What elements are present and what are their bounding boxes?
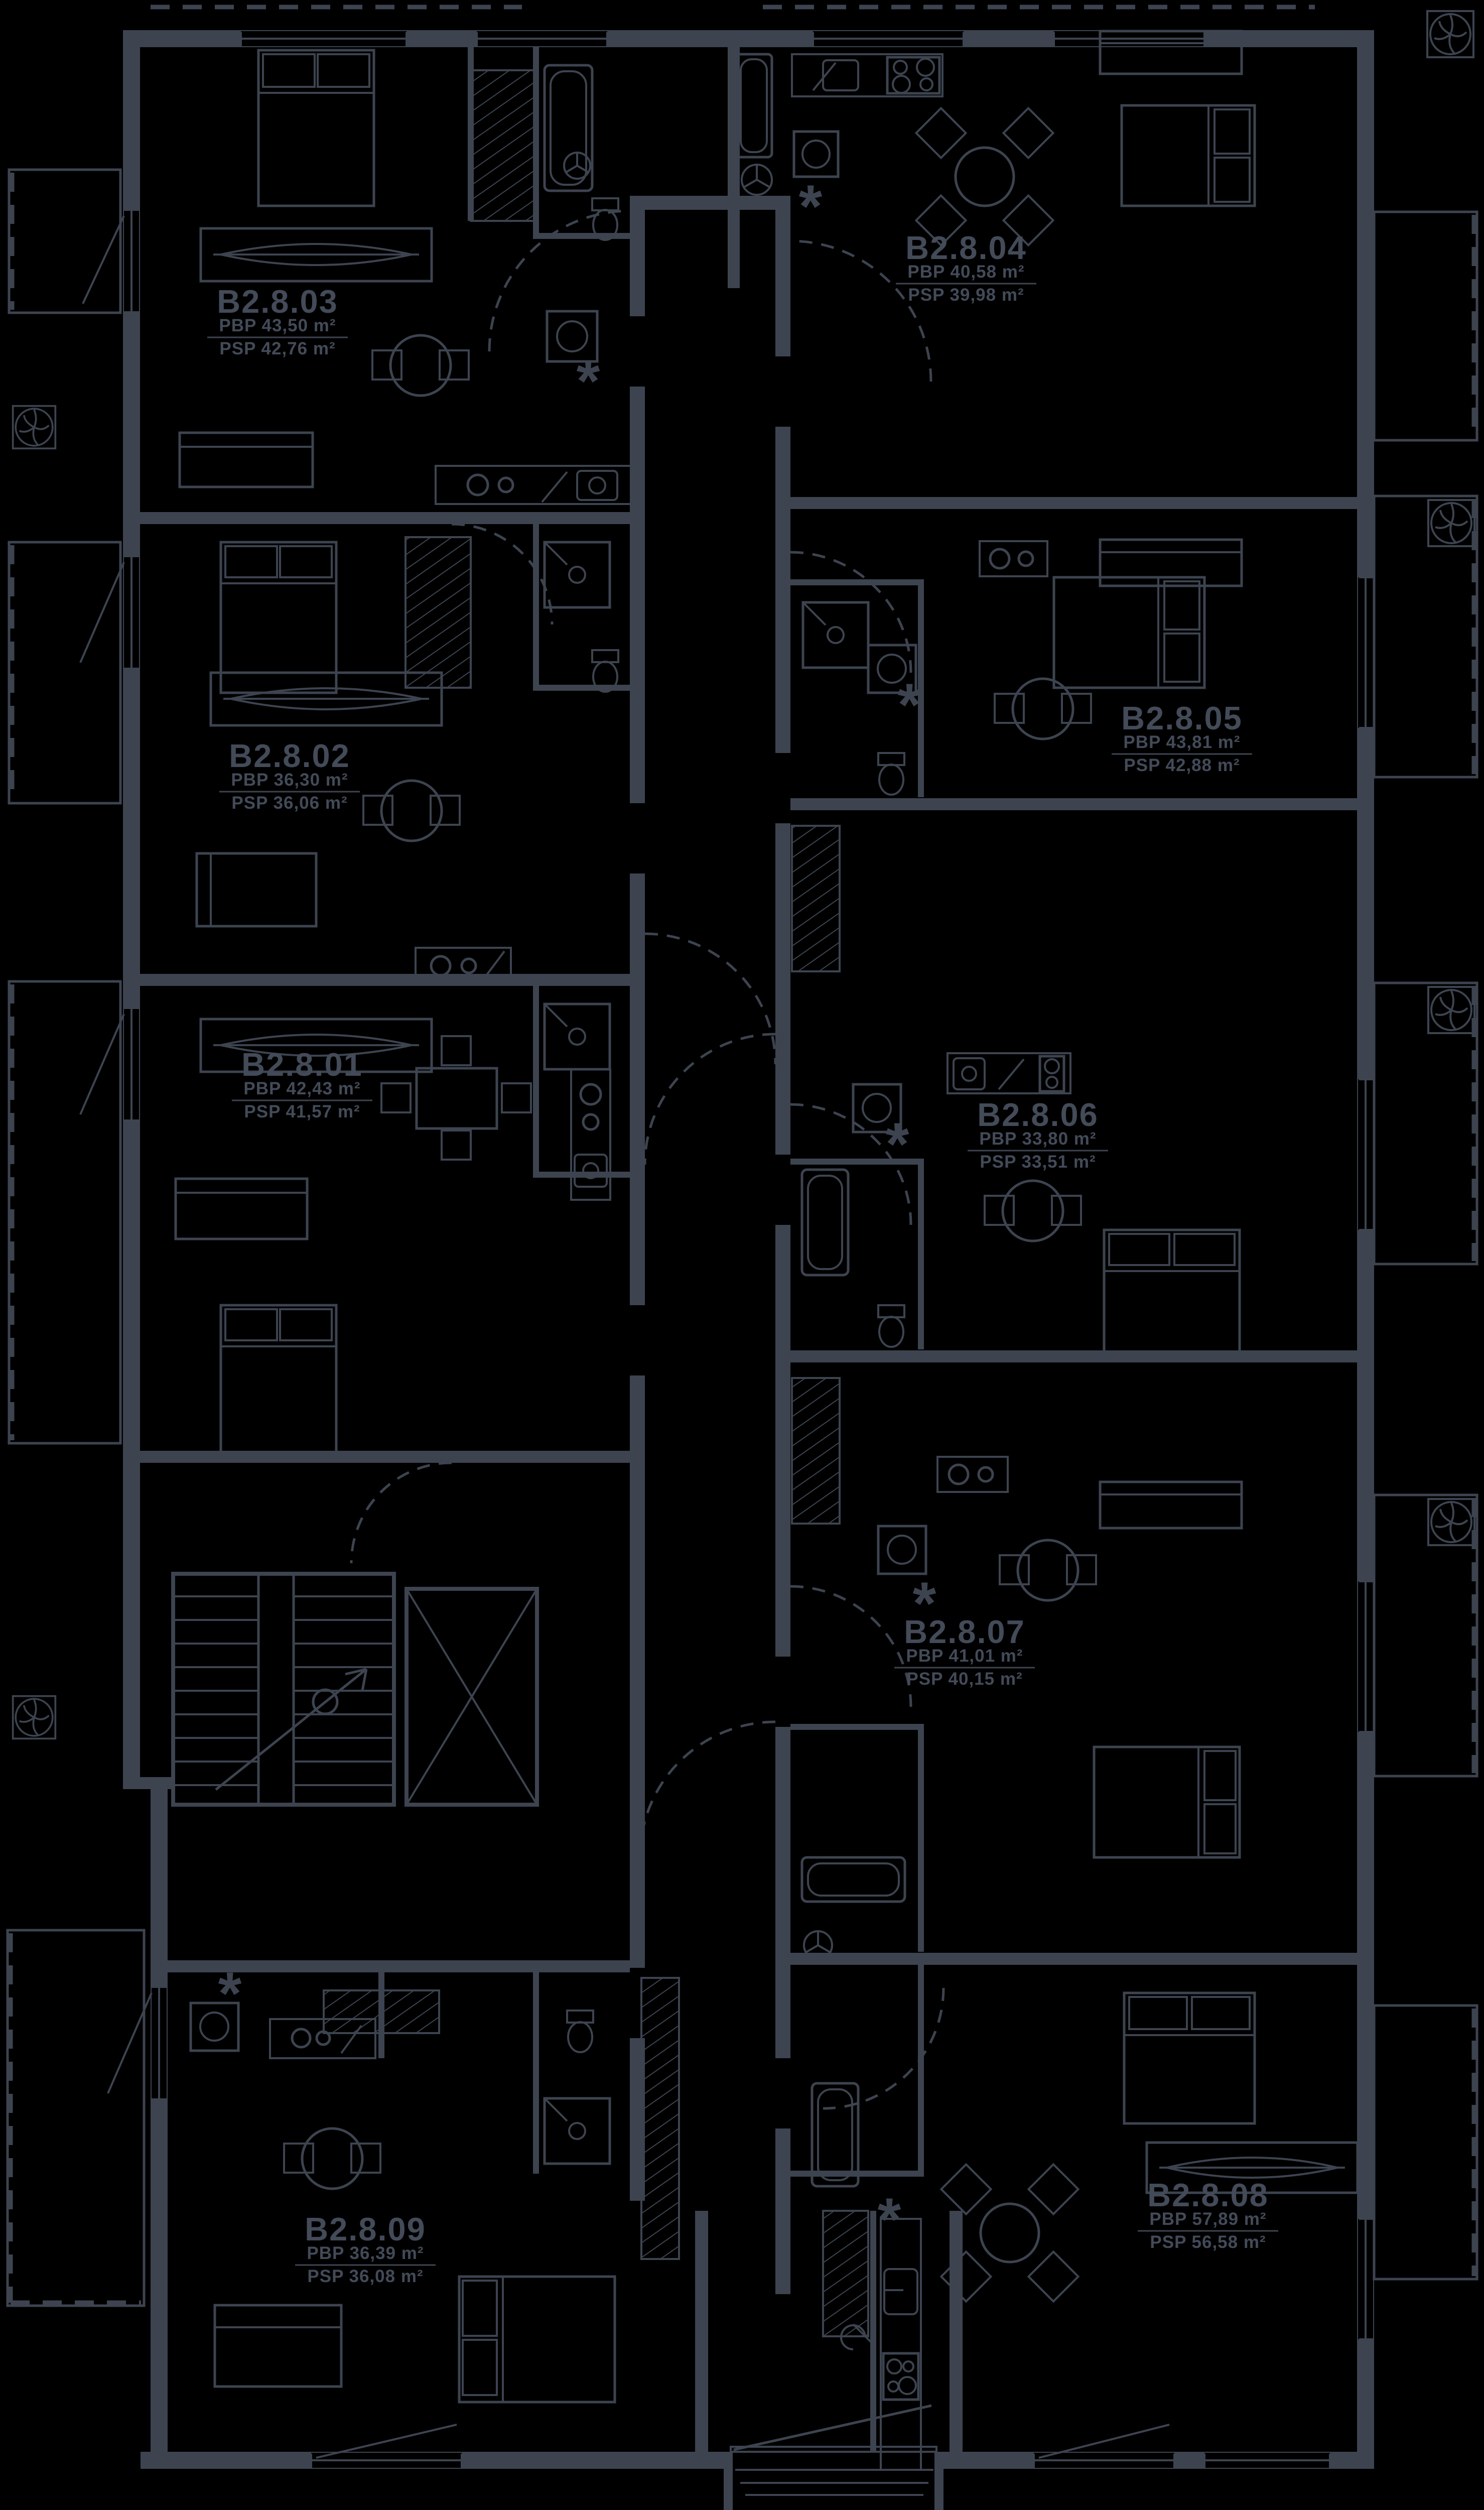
shower [545,2098,610,2164]
balcony [9,981,120,1443]
shower [545,1004,610,1069]
balcony-door [83,211,139,311]
double-bed [1122,105,1255,206]
apartment-psp: PSP 40,15 m² [906,1669,1022,1689]
apartment-label-b2-8-06: B2.8.06 PBP 33,80 m² PSP 33,51 m² [968,1096,1108,1172]
apartment-pbp: PBP 41,01 m² [906,1646,1023,1666]
asterisk-icon: * [799,173,823,240]
dining-table [1000,1540,1096,1600]
window [1204,2453,1330,2468]
fan-icon [742,165,772,195]
double-bed [221,542,336,693]
balcony [9,542,120,803]
balcony [1374,212,1477,440]
tree-icon [1428,987,1474,1033]
window [1358,1079,1373,1230]
sofa [176,1179,307,1239]
kitchen-counter [792,54,942,96]
balcony [1374,1495,1477,1776]
asterisk-icon: * [886,1110,909,1178]
kitchen-counter [571,1069,610,1200]
apartment-pbp: PBP 33,80 m² [979,1129,1096,1149]
floor-plan-page: * * * * * * * B2.8.03 PBP 43,50 m² PSP 4… [0,0,1484,2510]
apartment-id: B2.8.01 [241,1046,363,1083]
balcony-door [80,1009,139,1119]
apartment-psp: PSP 42,76 m² [219,339,335,358]
stair-direction-arrow [216,1669,366,1790]
window [241,31,407,46]
apartment-psp: PSP 42,88 m² [1124,756,1240,775]
building-entrance [724,2406,943,2510]
dining-table [284,2128,380,2189]
shower [803,602,868,668]
floor-plan-svg: * * * * * * * B2.8.03 PBP 43,50 m² PSP 4… [0,0,1484,2510]
apartment-pbp: PBP 43,81 m² [1123,732,1240,752]
apartment-psp: PSP 33,51 m² [980,1152,1096,1172]
kitchen-counter [436,466,631,504]
bathtub [802,1857,905,1902]
apartment-id: B2.8.03 [217,283,338,320]
dining-table [381,1036,531,1160]
radiator [201,228,432,281]
double-bed [1124,1993,1255,2123]
kitchen-counter [948,1053,1070,1093]
double-bed [1104,1230,1240,1355]
wardrobe [471,70,536,221]
apartment-psp: PSP 39,98 m² [908,285,1024,305]
sofa [215,2305,341,2387]
wardrobe [792,826,840,971]
window [1034,2425,1174,2468]
elevator [407,1589,537,1805]
kitchen-counter [980,541,1047,576]
terrace [8,1930,144,2306]
balcony [1374,983,1477,1264]
apartment-label-b2-8-03: B2.8.03 PBP 43,50 m² PSP 42,76 m² [207,283,348,358]
apartment-label-b2-8-01: B2.8.01 PBP 42,43 m² PSP 41,57 m² [232,1046,372,1121]
apartment-pbp: PBP 57,89 m² [1149,2209,1266,2229]
asterisk-icon: * [577,347,600,415]
apartment-id: B2.8.02 [229,737,350,774]
toilet [878,1305,904,1347]
apartment-id: B2.8.06 [977,1096,1099,1133]
double-bed [258,50,374,206]
double-bed [1054,577,1204,688]
bathtub [736,54,772,157]
furniture [176,31,1255,2470]
double-bed [1094,1747,1240,1857]
apartment-labels: B2.8.03 PBP 43,50 m² PSP 42,76 m² B2.8.0… [207,229,1278,2286]
apartment-id: B2.8.07 [904,1613,1025,1650]
dining-table [363,781,460,841]
balcony [1374,496,1477,777]
double-bed [221,1305,336,1456]
apartment-label-b2-8-04: B2.8.04 PBP 40,58 m² PSP 39,98 m² [896,229,1036,305]
wardrobe [823,2211,868,2336]
apartment-psp: PSP 41,57 m² [244,1102,360,1121]
tree-icon [1428,500,1474,546]
tree-icon [13,1696,56,1739]
apartment-pbp: PBP 43,50 m² [219,316,336,335]
apartment-label-b2-8-05: B2.8.05 PBP 43,81 m² PSP 42,88 m² [1112,700,1252,775]
apartment-label-b2-8-09: B2.8.09 PBP 36,39 m² PSP 36,08 m² [295,2211,436,2286]
window [1358,2219,1373,2339]
window [311,2425,462,2468]
apartment-id: B2.8.08 [1147,2177,1269,2213]
corridor-walls [630,47,790,2294]
toilet [878,753,904,795]
dining-table-4 [916,108,1053,245]
windows [80,31,1373,2468]
apartment-id: B2.8.09 [305,2211,426,2247]
apartment-id: B2.8.05 [1121,700,1243,736]
balcony-door [108,1988,167,2098]
staircase [173,1574,394,1805]
window [1358,577,1373,728]
dining-table [372,335,469,396]
unit-partition-walls [135,497,1357,2452]
wardrobe [641,1978,679,2259]
asterisk-icon: * [898,671,921,738]
sofa [180,433,313,487]
window [477,31,607,46]
apartment-pbp: PBP 42,43 m² [243,1079,360,1098]
toilet [567,2011,593,2052]
double-bed [459,2277,615,2402]
apartment-label-b2-8-02: B2.8.02 PBP 36,30 m² PSP 36,06 m² [219,737,360,813]
washing-machine [794,132,838,177]
apartment-id: B2.8.04 [905,229,1027,266]
apartment-pbp: PBP 36,39 m² [307,2243,424,2263]
sofa [1100,1482,1242,1528]
asterisk-icon: * [878,2186,901,2253]
shower [545,542,610,607]
window [813,31,964,46]
trees [13,11,1474,1738]
washing-machine [878,1526,926,1574]
apartment-psp: PSP 36,06 m² [231,793,347,813]
tree-icon [1427,11,1473,57]
dining-table [985,1181,1081,1241]
window [1358,1581,1373,1732]
bathtub [802,1170,848,1275]
balcony [1374,2005,1477,2279]
wardrobe [406,537,471,688]
balcony [9,170,120,313]
apartment-pbp: PBP 36,30 m² [231,770,348,790]
tree-icon [1428,1499,1474,1545]
kitchen-counter [937,1457,1008,1492]
apartment-psp: PSP 36,08 m² [307,2267,423,2286]
wardrobe [792,1378,840,1524]
asterisk-icon: * [218,1960,242,2027]
exterior-walls [123,30,1374,2469]
apartment-psp: PSP 56,58 m² [1150,2232,1266,2252]
apartment-label-b2-8-07: B2.8.07 PBP 41,01 m² PSP 40,15 m² [894,1613,1035,1689]
sofa [197,853,316,926]
apartment-pbp: PBP 40,58 m² [907,262,1024,282]
wardrobe [324,1990,439,2033]
apartment-label-b2-8-08: B2.8.08 PBP 57,89 m² PSP 56,58 m² [1138,2177,1278,2252]
balcony-door [80,557,139,668]
sofa [1100,540,1242,586]
tree-icon [13,406,56,449]
